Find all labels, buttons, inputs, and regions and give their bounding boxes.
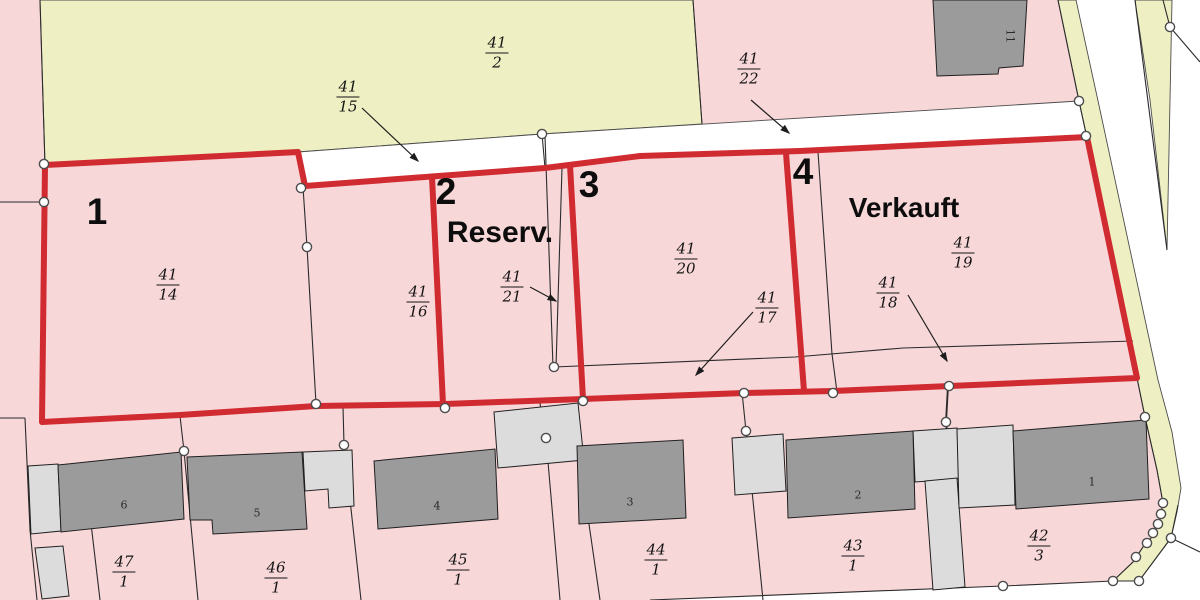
parcel-label-43-1: 431 bbox=[841, 539, 864, 574]
parcel-label-45-1: 451 bbox=[446, 553, 469, 588]
building-number-3: 3 bbox=[627, 496, 634, 509]
status-label-reserv: Reserv. bbox=[447, 216, 553, 250]
building-number-5: 5 bbox=[254, 507, 261, 520]
parcel-label-46-1: 461 bbox=[264, 561, 287, 596]
parcel-label-41-17: 4117 bbox=[755, 291, 778, 326]
parcel-label-47-1: 471 bbox=[112, 555, 135, 590]
building-number-2: 2 bbox=[855, 489, 862, 502]
parcel-label-41-15: 4115 bbox=[336, 80, 359, 115]
building-number-4: 4 bbox=[434, 500, 441, 513]
building-number-11: 11 bbox=[1004, 29, 1017, 43]
status-label-verkauft: Verkauft bbox=[849, 192, 960, 224]
building-number-1: 1 bbox=[1089, 476, 1096, 489]
parcel-label-41-20: 4120 bbox=[674, 242, 697, 277]
parcel-label-44-1: 441 bbox=[644, 543, 667, 578]
parcel-label-41-22: 4122 bbox=[737, 52, 760, 87]
plot-number-4: 4 bbox=[793, 151, 814, 193]
parcel-label-41-18: 4118 bbox=[876, 276, 899, 311]
plot-number-3: 3 bbox=[579, 164, 600, 206]
parcel-label-41-19: 4119 bbox=[951, 236, 974, 271]
map-labels-layer: 4124122411541144116412141204117411841194… bbox=[0, 0, 1200, 600]
plot-number-2: 2 bbox=[436, 171, 457, 213]
cadastral-map: 4124122411541144116412141204117411841194… bbox=[0, 0, 1200, 600]
parcel-label-41-2: 412 bbox=[485, 36, 508, 71]
plot-number-1: 1 bbox=[87, 191, 108, 233]
building-number-6: 6 bbox=[121, 499, 128, 512]
parcel-label-42-3: 423 bbox=[1027, 529, 1050, 564]
parcel-label-41-21: 4121 bbox=[500, 270, 523, 305]
parcel-label-41-16: 4116 bbox=[406, 285, 429, 320]
parcel-label-41-14: 4114 bbox=[156, 268, 179, 303]
